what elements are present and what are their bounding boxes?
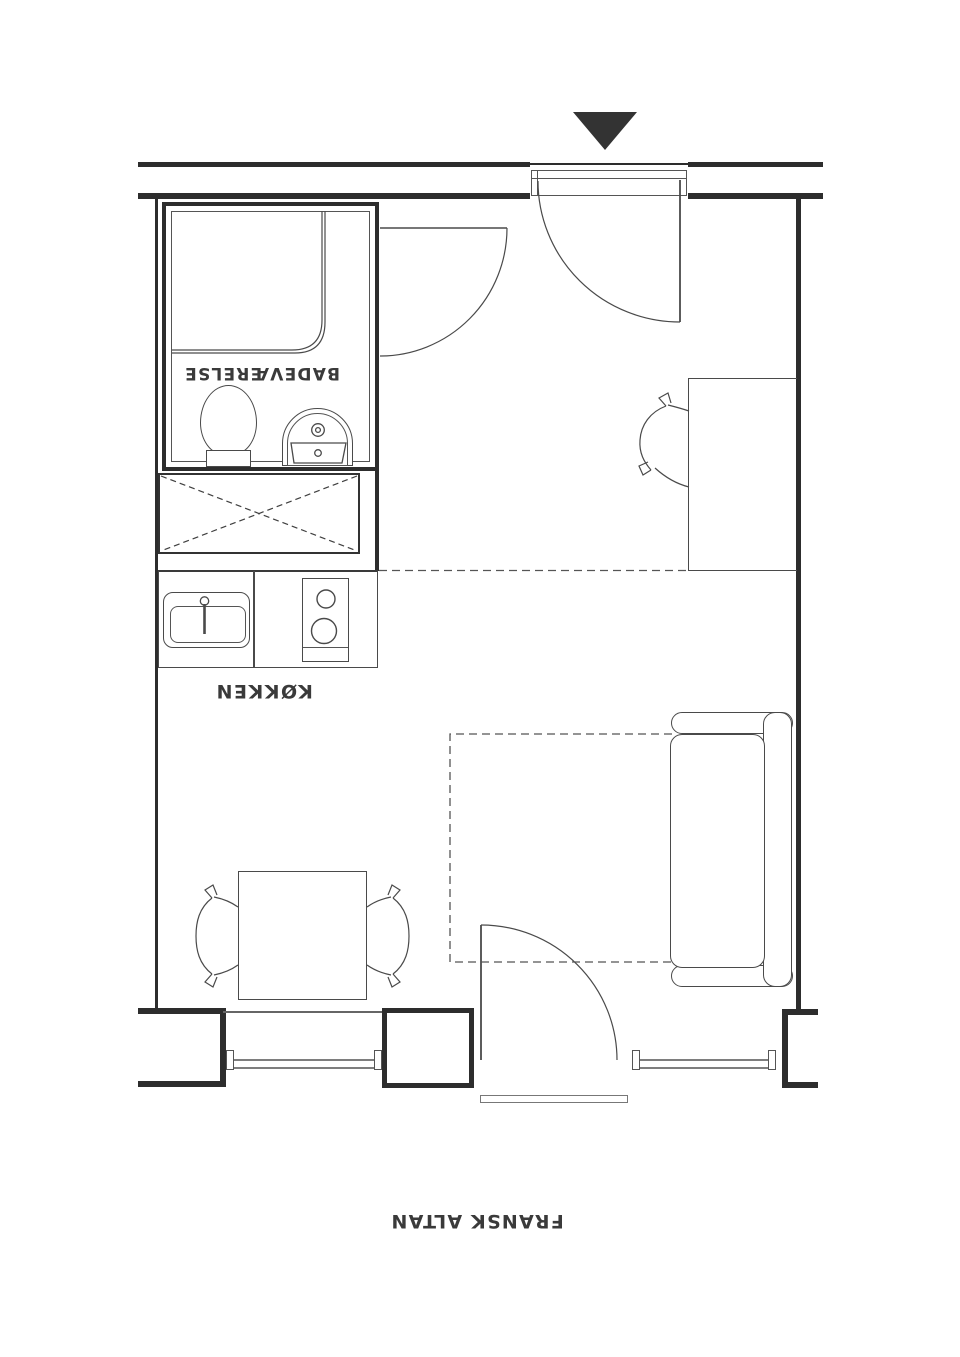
bathroom-label: BADEVÆRELSE — [184, 363, 340, 383]
plan-linework — [0, 0, 960, 1357]
kitchen-label: KØKKEN — [215, 680, 313, 702]
dining-chair-left — [196, 885, 238, 987]
balcony-door — [481, 925, 617, 1060]
fold-out-bed-outline — [450, 734, 676, 962]
entry-door — [538, 180, 680, 322]
kitchen-fixture-details — [200, 590, 336, 644]
floor-plan: BADEVÆRELSE KØKKEN FRANSK ALTAN — [0, 0, 960, 1357]
shower-icon — [172, 211, 325, 353]
desk-chair — [639, 393, 689, 487]
washbasin-details — [291, 424, 346, 463]
dining-chair-right — [367, 885, 409, 987]
balcony-label: FRANSK ALTAN — [390, 1210, 563, 1232]
wardrobe-cross — [161, 476, 357, 551]
bathroom-door — [380, 228, 507, 356]
